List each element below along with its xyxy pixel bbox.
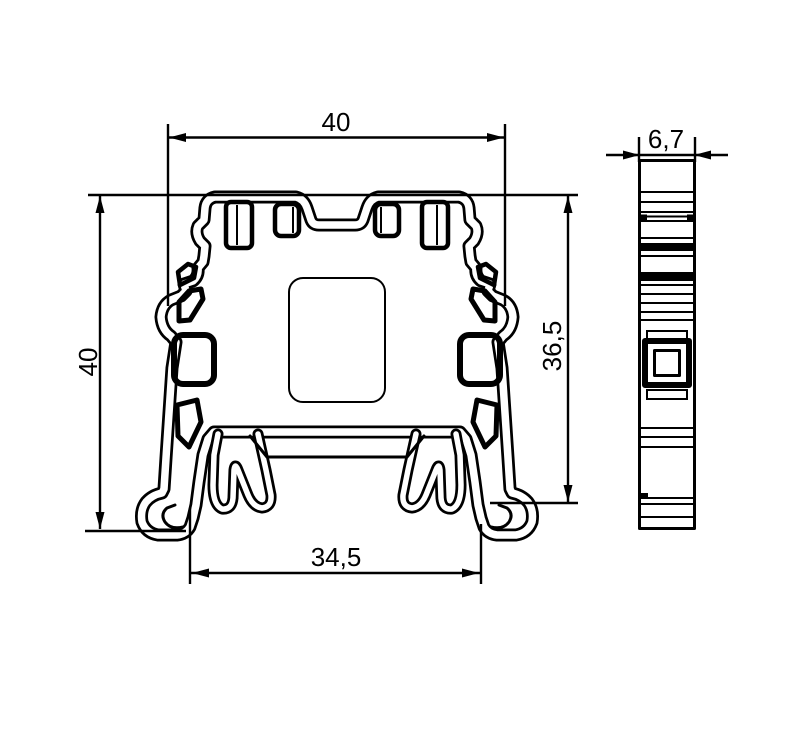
front-right-lower-pocket	[473, 400, 497, 447]
front-right-foot-curl	[491, 505, 511, 528]
side-screw-window	[645, 331, 689, 399]
front-slot-left-inner	[275, 204, 299, 236]
arrow-left-icon	[694, 151, 711, 160]
drawing-canvas: 40 40 36,5 34,5 6,7	[0, 0, 800, 737]
arrow-down-icon	[96, 512, 105, 529]
technical-drawing-sheet: 40 40 36,5 34,5 6,7	[0, 0, 800, 737]
side-tick-left	[641, 215, 647, 222]
side-screw-window-inner	[655, 351, 680, 376]
side-view	[640, 161, 695, 529]
arrow-right-icon	[462, 569, 479, 578]
side-tick-right	[687, 215, 693, 222]
dim-side-width: 6,7	[606, 124, 728, 160]
arrow-left-icon	[192, 569, 209, 578]
arrow-left-icon	[169, 133, 186, 142]
dim-top-width: 40	[168, 107, 505, 142]
front-view	[142, 197, 533, 535]
arrow-up-icon	[564, 196, 573, 213]
front-slot-right-inner	[375, 204, 399, 236]
front-bottom-channel	[250, 436, 424, 457]
arrow-up-icon	[96, 196, 105, 213]
dim-right-height-label: 36,5	[537, 321, 567, 372]
dim-top-width-label: 40	[322, 107, 351, 137]
front-left-lower-pocket	[177, 400, 201, 447]
arrow-down-icon	[564, 485, 573, 502]
dim-bottom-width: 34,5	[191, 542, 480, 578]
side-band-1	[640, 243, 694, 251]
dim-side-width-label: 6,7	[648, 124, 684, 154]
dim-bottom-width-label: 34,5	[311, 542, 362, 572]
dim-right-height: 36,5	[537, 196, 573, 502]
arrow-right-icon	[487, 133, 504, 142]
front-left-foot-curl	[163, 505, 183, 528]
dim-left-height: 40	[73, 196, 105, 529]
side-band-2	[640, 272, 694, 281]
dim-left-height-label: 40	[73, 348, 103, 377]
side-segment-lines	[640, 192, 694, 517]
front-slot-right-outer	[422, 202, 448, 248]
side-screw-window-outer	[645, 341, 689, 385]
front-slot-left-outer	[226, 202, 252, 248]
front-marking-window	[289, 278, 385, 402]
arrow-right-icon	[623, 151, 640, 160]
